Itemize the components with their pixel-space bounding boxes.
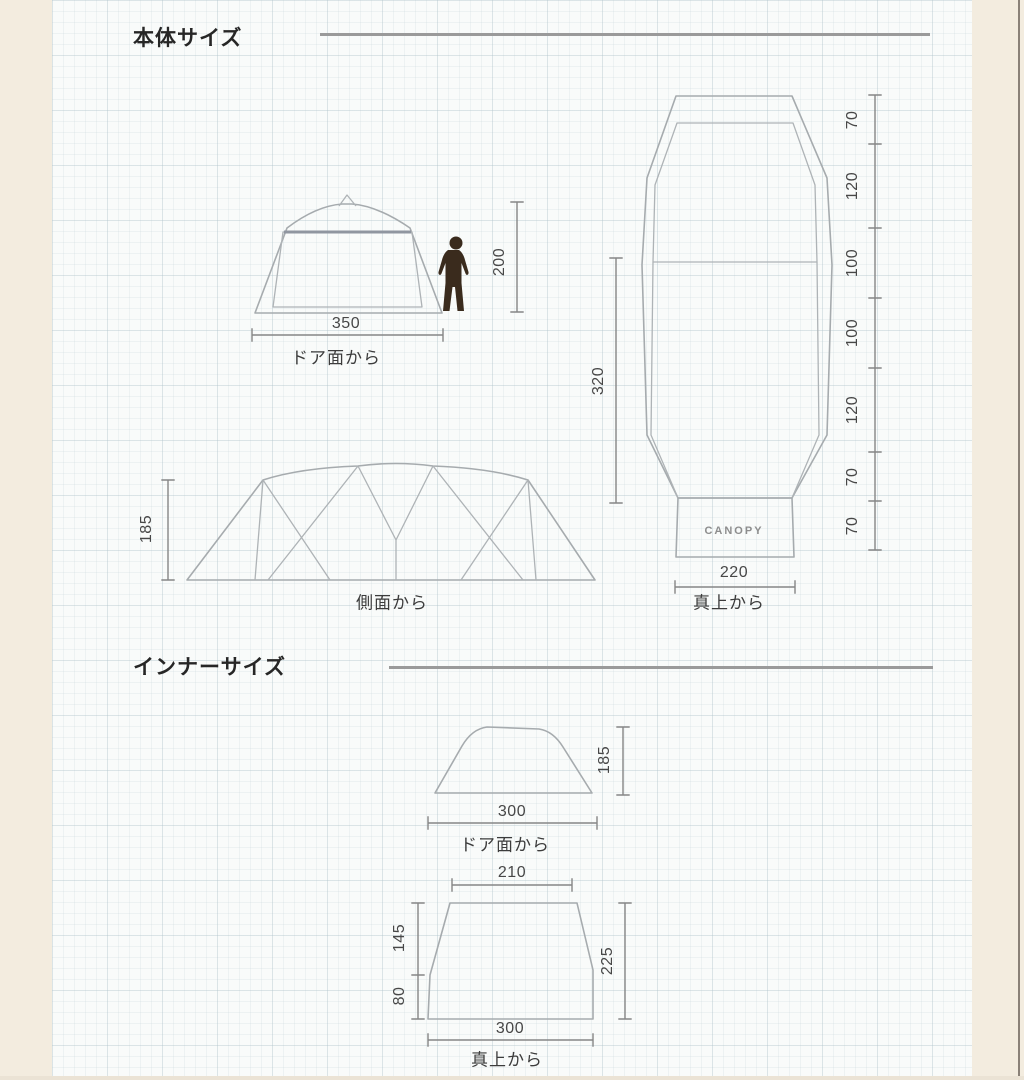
person-height-label: 200	[491, 248, 509, 276]
body-side-view	[162, 464, 595, 581]
segment-label-2: 120	[844, 172, 862, 200]
inner-front-height-dim	[617, 727, 629, 795]
body-front-width-label: 350	[332, 315, 360, 333]
canopy-label: CANOPY	[704, 525, 763, 537]
body-top-view	[610, 95, 881, 593]
body-top-roof-panel	[653, 123, 817, 262]
body-front-outline	[255, 204, 442, 313]
inner-top-left-dim	[412, 903, 424, 1019]
inner-top-left-upper-label: 145	[391, 924, 409, 952]
inner-top-outline	[428, 903, 593, 1019]
segment-label-1: 70	[844, 111, 862, 130]
body-top-length-label: 320	[590, 367, 608, 395]
body-front-view-label: ドア面から	[291, 344, 381, 369]
body-top-canopy-width-label: 220	[720, 564, 748, 582]
inner-top-left-lower-label: 80	[391, 987, 409, 1006]
segment-label-6: 70	[844, 468, 862, 487]
person-body	[438, 250, 468, 311]
inner-top-right-dim	[619, 903, 631, 1019]
inner-front-height-label: 185	[596, 746, 614, 774]
body-top-view-label: 真上から	[693, 589, 765, 614]
segment-label-7: 70	[844, 517, 862, 536]
inner-top-right-label: 225	[599, 947, 617, 975]
inner-front-outline	[435, 727, 592, 793]
inner-top-bottomwidth-label: 300	[496, 1020, 524, 1038]
body-side-outline	[187, 464, 595, 581]
inner-front-width-label: 300	[498, 803, 526, 821]
body-top-fold-lines	[651, 262, 819, 498]
inner-top-view-label: 真上から	[471, 1046, 543, 1071]
body-front-door-panel	[273, 232, 422, 307]
person-height-dim	[511, 202, 523, 312]
segment-label-5: 120	[844, 396, 862, 424]
segment-label-4: 100	[844, 319, 862, 347]
segment-label-3: 100	[844, 249, 862, 277]
body-side-view-label: 側面から	[356, 589, 428, 614]
body-side-height-label: 185	[138, 515, 156, 543]
inner-top-topwidth-label: 210	[498, 864, 526, 882]
body-side-frame-lines	[255, 466, 536, 580]
body-top-segment-dim	[869, 95, 881, 550]
inner-front-view-label: ドア面から	[460, 831, 550, 856]
person-head	[450, 237, 463, 250]
inner-front-view	[428, 727, 629, 829]
body-top-outline	[642, 96, 832, 498]
body-side-height-dim	[162, 480, 174, 580]
body-top-length-dim	[610, 258, 622, 503]
person-figure	[438, 202, 523, 312]
